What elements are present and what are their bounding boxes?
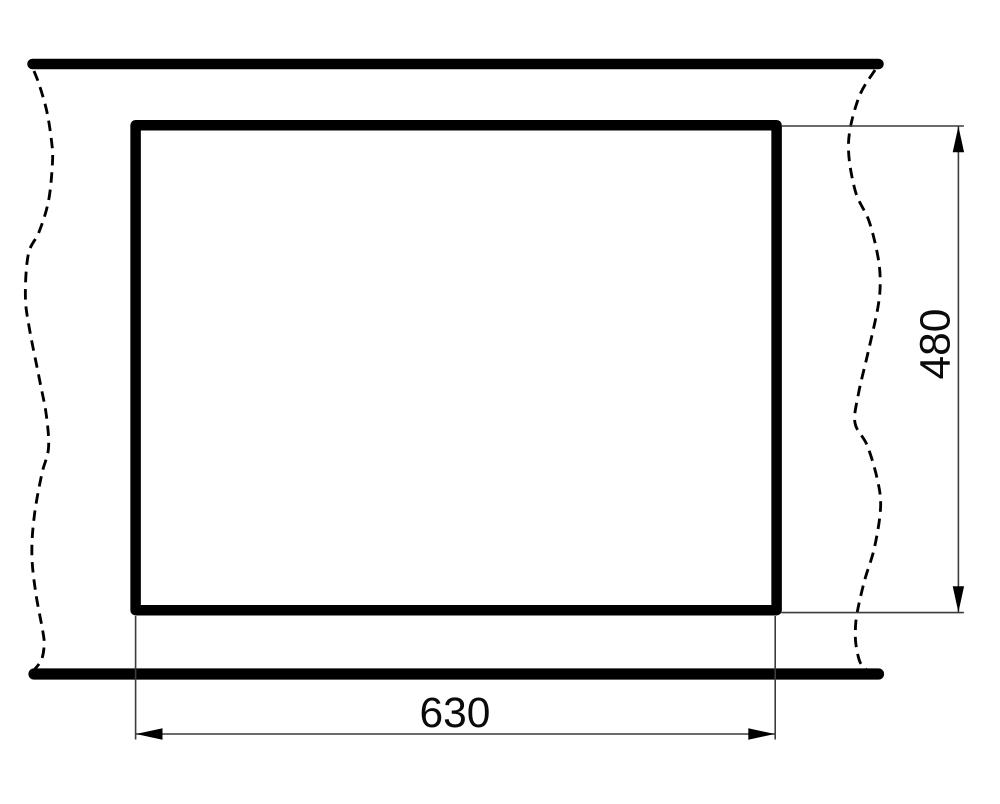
svg-text:480: 480 — [913, 309, 960, 380]
svg-text:630: 630 — [420, 690, 491, 737]
